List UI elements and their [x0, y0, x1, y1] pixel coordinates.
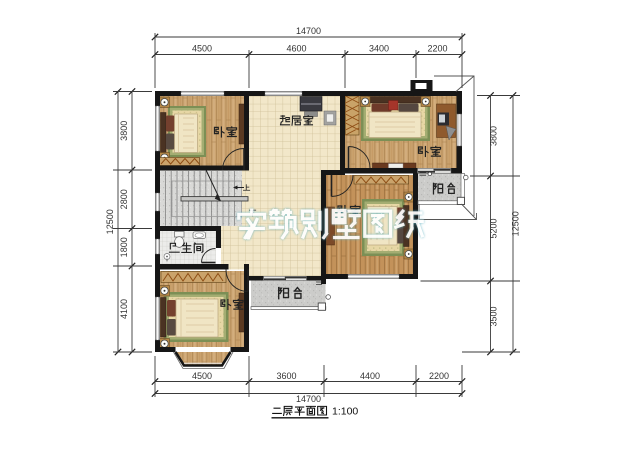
- svg-text:3800: 3800: [119, 121, 129, 141]
- svg-text:1800: 1800: [119, 237, 129, 257]
- svg-text:1:100: 1:100: [332, 406, 358, 418]
- svg-text:3600: 3600: [276, 371, 296, 381]
- svg-text:4500: 4500: [192, 44, 212, 54]
- svg-text:5200: 5200: [489, 218, 499, 238]
- svg-text:4600: 4600: [286, 44, 306, 54]
- svg-text:2200: 2200: [429, 371, 449, 381]
- svg-text:4500: 4500: [192, 371, 212, 381]
- svg-text:3400: 3400: [369, 44, 389, 54]
- svg-text:2800: 2800: [119, 189, 129, 209]
- svg-text:12500: 12500: [105, 209, 115, 234]
- svg-text:2200: 2200: [427, 44, 447, 54]
- svg-text:4400: 4400: [360, 371, 380, 381]
- svg-text:3800: 3800: [489, 126, 499, 146]
- svg-text:4100: 4100: [119, 299, 129, 319]
- svg-text:14700: 14700: [296, 394, 321, 404]
- svg-text:3500: 3500: [489, 306, 499, 326]
- svg-text:12500: 12500: [511, 211, 521, 236]
- svg-text:14700: 14700: [296, 26, 321, 36]
